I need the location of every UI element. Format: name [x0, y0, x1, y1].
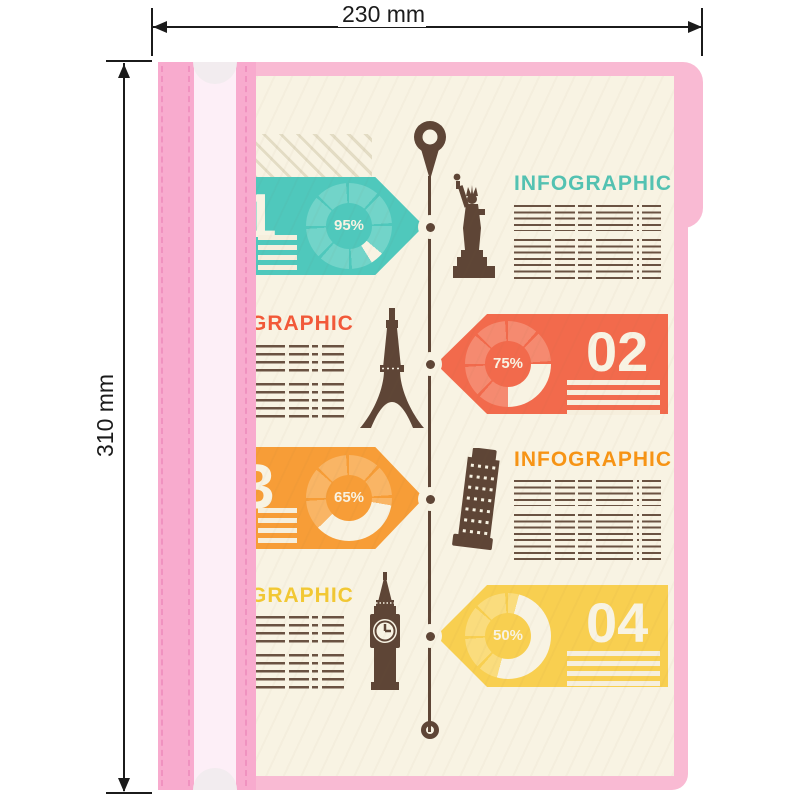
infographic-page: 1 95% INFOGRAPHIC — [256, 76, 674, 776]
placeholder-paragraph — [514, 480, 661, 506]
spine-stitch-line — [161, 66, 163, 786]
timeline-node — [418, 352, 442, 376]
spine-strip-light — [194, 62, 236, 790]
node-dot — [426, 360, 435, 369]
spine-stitch-line — [188, 66, 190, 786]
donut-chart: 75% — [465, 321, 551, 407]
width-dimension-label: 230 mm — [338, 1, 426, 27]
placeholder-paragraph — [514, 514, 661, 560]
placeholder-paragraph — [514, 239, 661, 283]
dimension-tick — [106, 792, 152, 794]
placeholder-paragraphs — [256, 345, 344, 423]
timeline — [428, 176, 431, 732]
pisa-tower-icon — [438, 448, 508, 552]
node-dot — [426, 495, 435, 504]
section-heading: GRAPHIC — [256, 584, 354, 608]
placeholder-lines — [567, 380, 660, 417]
donut-chart: 95% — [306, 183, 392, 269]
placeholder-paragraphs — [256, 616, 344, 690]
percent-label: 65% — [326, 475, 372, 521]
folder-spine — [158, 62, 256, 790]
product-diagram: 230 mm 310 mm 1 — [0, 0, 800, 800]
timeline-node — [418, 624, 442, 648]
section-heading: INFOGRAPHIC — [514, 448, 672, 472]
donut-chart: 50% — [465, 593, 551, 679]
placeholder-paragraphs — [514, 205, 661, 283]
node-dot — [426, 223, 435, 232]
height-dimension-label: 310 mm — [92, 373, 118, 461]
arrowhead-right-icon — [688, 21, 702, 33]
dimension-tick — [106, 60, 152, 62]
placeholder-paragraph — [256, 345, 344, 375]
section-number: 02 — [586, 324, 648, 380]
eiffel-tower-icon — [358, 308, 426, 432]
placeholder-paragraph — [256, 616, 344, 646]
percent-label: 50% — [485, 613, 531, 659]
percent-label: 95% — [326, 203, 372, 249]
percent-label: 75% — [485, 341, 531, 387]
timeline-node — [418, 487, 442, 511]
arrowhead-left-icon — [153, 21, 167, 33]
placeholder-paragraph — [256, 654, 344, 690]
dimension-line — [123, 63, 125, 791]
placeholder-lines — [258, 235, 297, 271]
map-pin-icon — [412, 118, 448, 182]
section-number: 04 — [586, 595, 648, 651]
arrowhead-down-icon — [118, 778, 130, 792]
section-heading: GRAPHIC — [256, 312, 354, 336]
placeholder-paragraphs — [514, 480, 661, 560]
arrowhead-up-icon — [118, 64, 130, 78]
spine-stitch-line — [245, 66, 247, 786]
timeline-node — [418, 215, 442, 239]
big-ben-icon — [362, 572, 408, 690]
dimension-line — [153, 26, 702, 28]
section-heading: INFOGRAPHIC — [514, 172, 672, 196]
statue-of-liberty-icon — [448, 172, 500, 278]
placeholder-paragraph — [514, 205, 661, 231]
donut-chart: 65% — [306, 455, 392, 541]
placeholder-paragraph — [256, 383, 344, 423]
timeline-end-ring — [421, 721, 439, 739]
node-dot — [426, 632, 435, 641]
placeholder-lines — [567, 651, 660, 688]
placeholder-lines — [258, 508, 297, 544]
